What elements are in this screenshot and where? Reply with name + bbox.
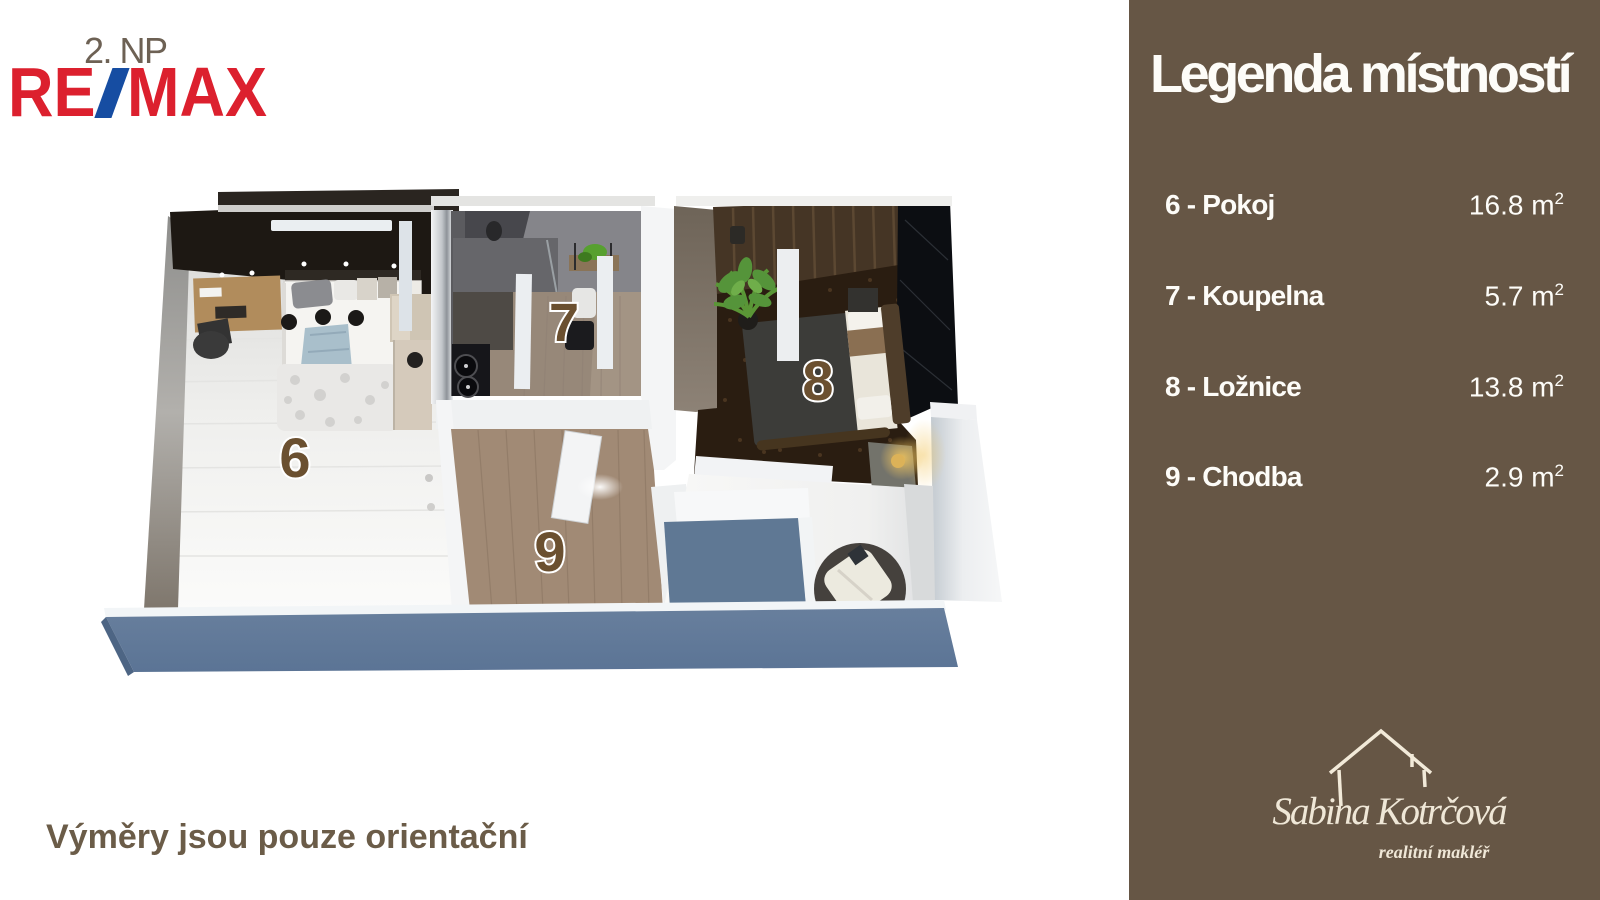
svg-text:7: 7 [549,293,579,353]
svg-text:8: 8 [802,349,833,412]
svg-text:9: 9 [534,520,565,583]
svg-text:6: 6 [279,426,310,489]
